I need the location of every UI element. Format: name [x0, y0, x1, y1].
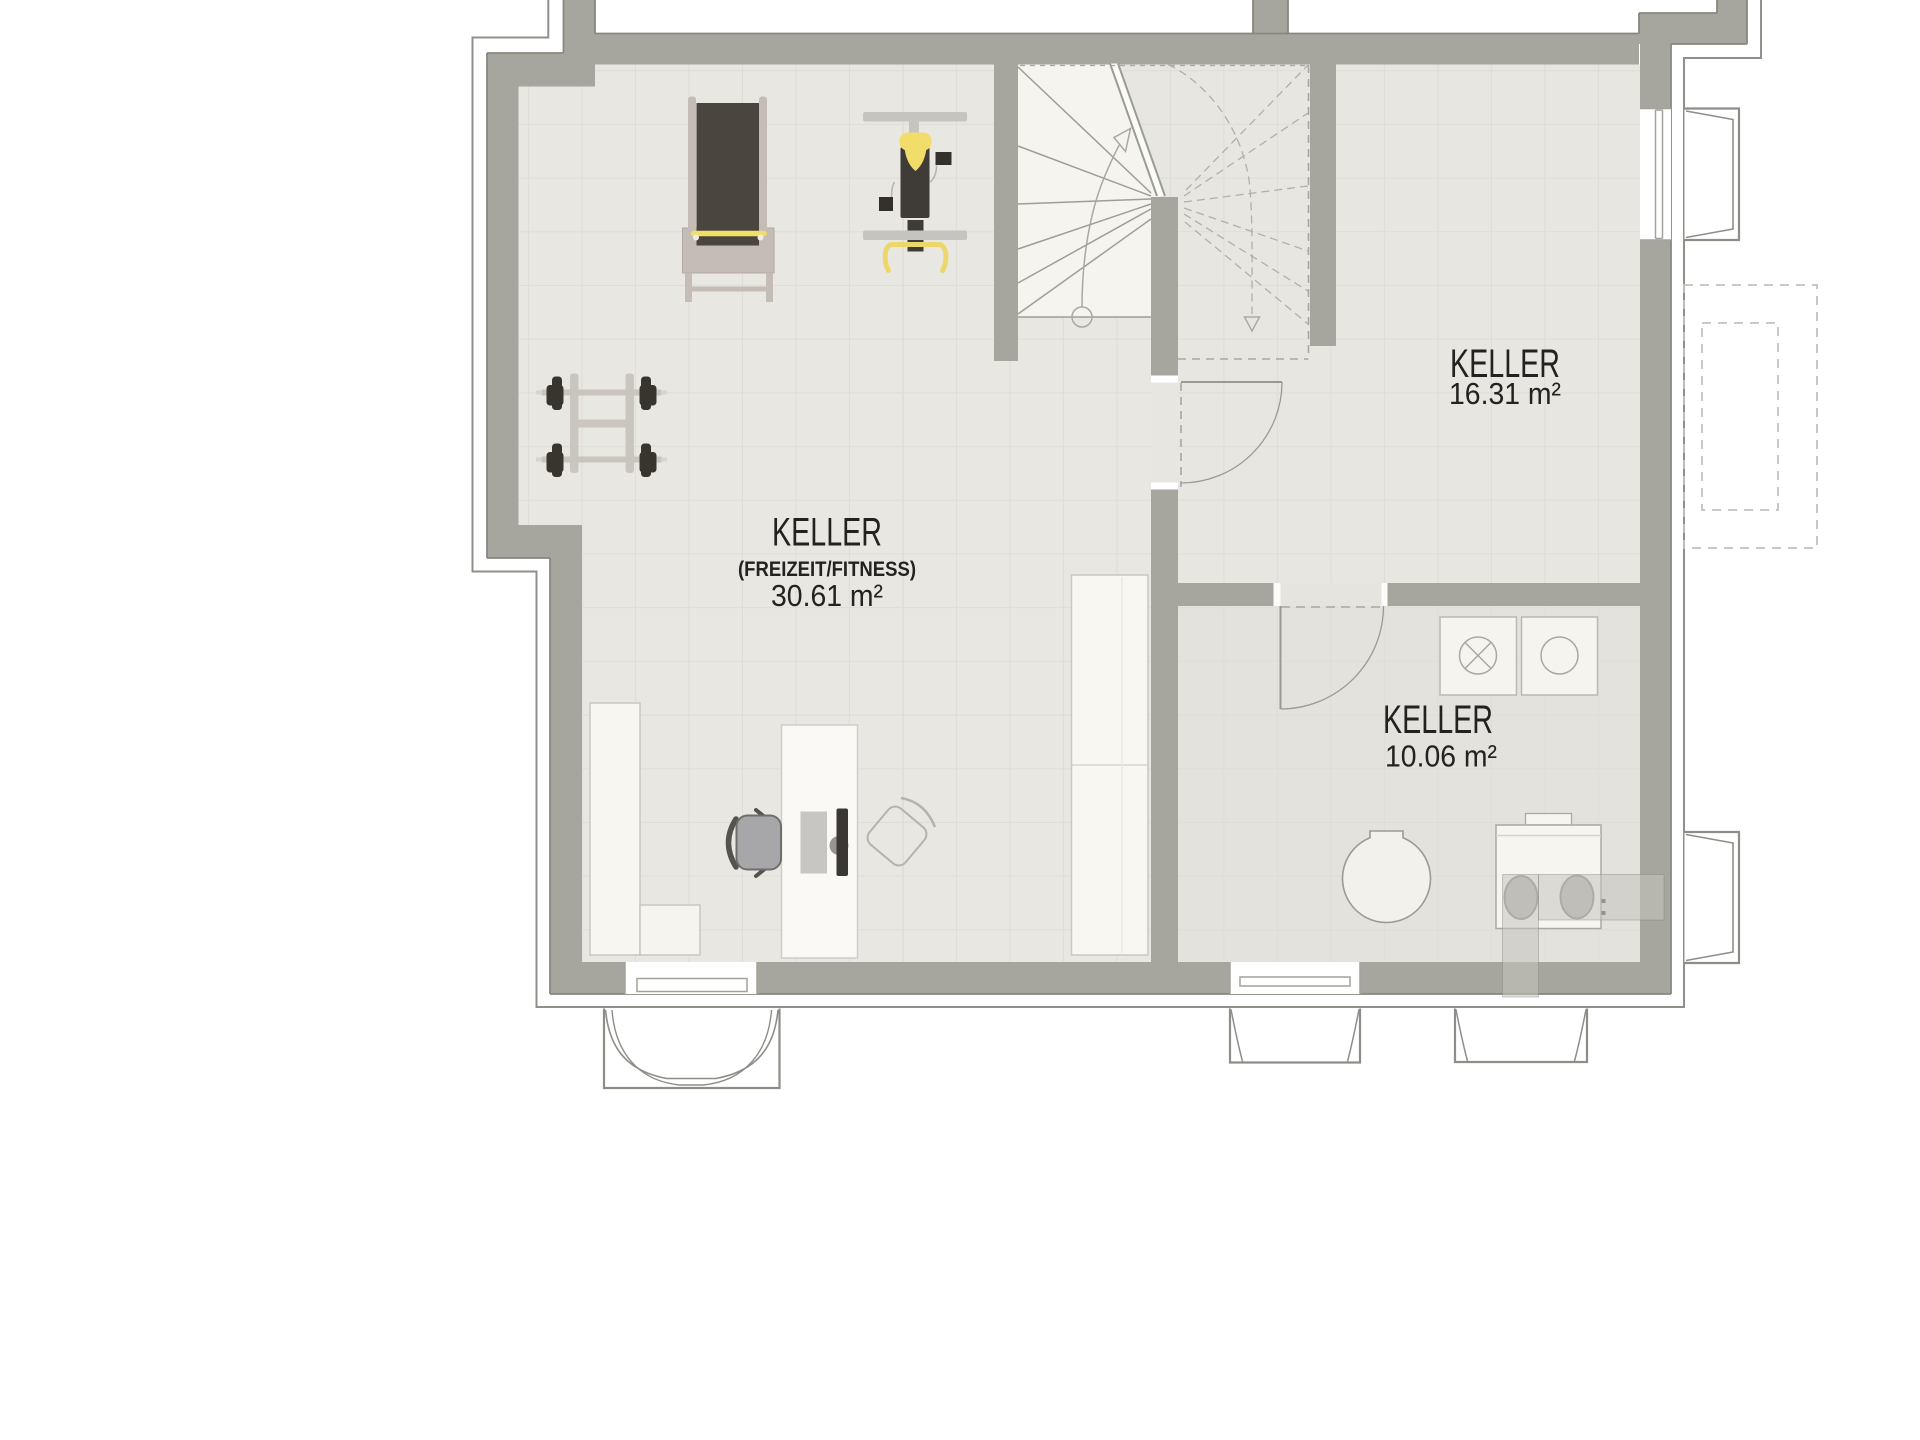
svg-text:10.06 m²: 10.06 m² [1385, 739, 1497, 774]
svg-text:16.31 m²: 16.31 m² [1449, 376, 1561, 411]
svg-text:KELLER: KELLER [1383, 698, 1493, 742]
svg-text:KELLER: KELLER [772, 511, 882, 555]
svg-text:30.61 m²: 30.61 m² [771, 578, 883, 613]
